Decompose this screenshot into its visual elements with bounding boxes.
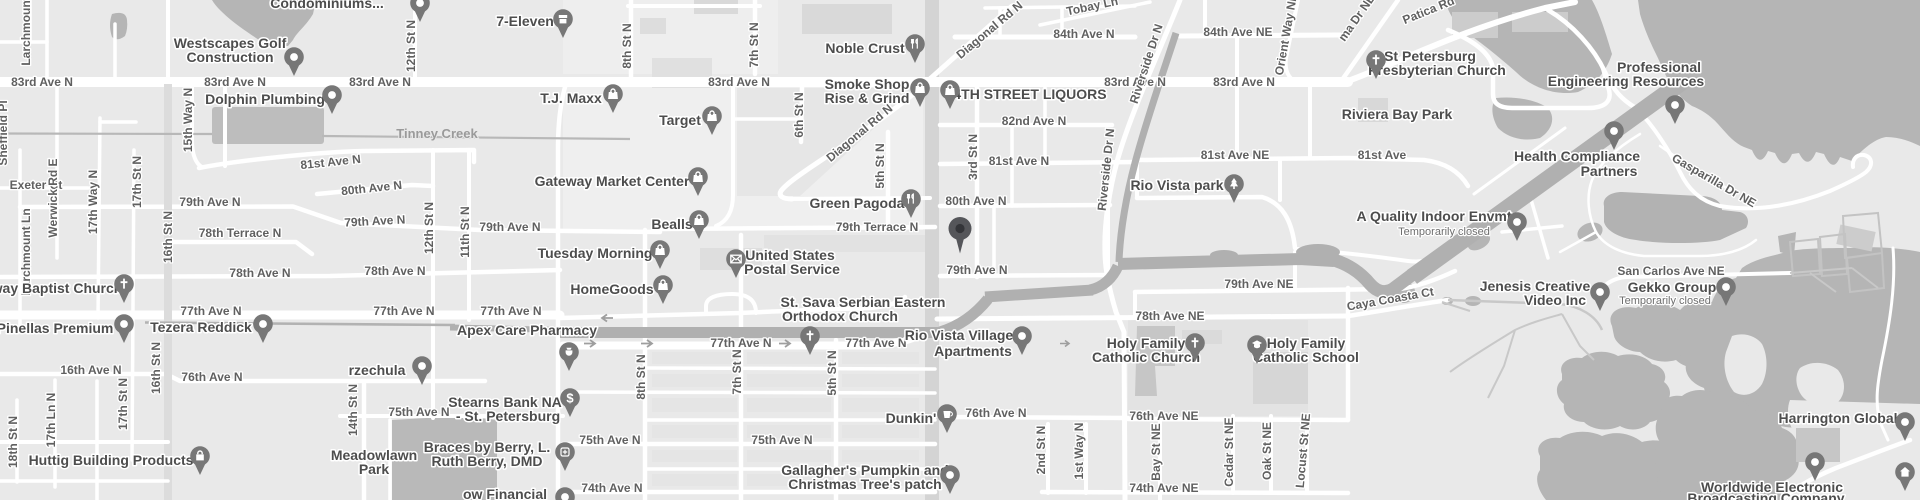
svg-text:81st Ave NE: 81st Ave NE	[1201, 148, 1269, 162]
svg-text:Dunkin': Dunkin'	[886, 410, 937, 426]
svg-text:7th St N: 7th St N	[730, 349, 744, 394]
svg-text:Temporarily closed: Temporarily closed	[1398, 226, 1490, 238]
svg-text:11th St N: 11th St N	[458, 206, 472, 257]
svg-text:83rd Ave N: 83rd Ave N	[1213, 75, 1275, 89]
svg-text:12th St N: 12th St N	[422, 202, 436, 254]
svg-text:1st Way N: 1st Way N	[1072, 423, 1086, 480]
svg-text:8th St N: 8th St N	[620, 23, 634, 68]
svg-text:82nd Ave N: 82nd Ave N	[1002, 114, 1066, 128]
svg-text:Werwick Rd E: Werwick Rd E	[46, 158, 60, 237]
svg-text:84th Ave N: 84th Ave N	[1053, 27, 1114, 41]
svg-text:75th Ave N: 75th Ave N	[751, 433, 812, 447]
svg-text:Engineering Resources: Engineering Resources	[1548, 73, 1705, 89]
svg-text:Dolphin Plumbing: Dolphin Plumbing	[205, 91, 325, 107]
svg-text:T.J. Maxx: T.J. Maxx	[540, 90, 602, 106]
svg-text:79th Terrace N: 79th Terrace N	[836, 220, 918, 234]
svg-text:14th St N: 14th St N	[346, 384, 360, 436]
svg-text:Apex Care Pharmacy: Apex Care Pharmacy	[457, 322, 597, 338]
svg-text:Orthodox Church: Orthodox Church	[782, 308, 898, 324]
svg-text:Broadcasting Company: Broadcasting Company	[1687, 490, 1844, 500]
svg-text:Huttig Building Products: Huttig Building Products	[29, 452, 194, 468]
svg-text:Presbyterian Church: Presbyterian Church	[1368, 62, 1506, 78]
svg-text:Condominiums...: Condominiums...	[270, 0, 384, 11]
svg-text:Catholic School: Catholic School	[1253, 349, 1359, 365]
svg-text:Green Pagoda: Green Pagoda	[810, 195, 905, 211]
svg-text:Postal Service: Postal Service	[744, 261, 840, 277]
svg-text:76th Ave NE: 76th Ave NE	[1129, 409, 1198, 423]
svg-text:Partners: Partners	[1581, 163, 1638, 179]
svg-text:Rise & Grind: Rise & Grind	[825, 90, 910, 106]
svg-text:- St. Petersburg: - St. Petersburg	[456, 408, 560, 424]
svg-text:6th St N: 6th St N	[792, 92, 806, 137]
svg-text:Oak St NE: Oak St NE	[1260, 422, 1274, 480]
svg-text:Park: Park	[359, 461, 390, 477]
svg-text:78th Terrace N: 78th Terrace N	[199, 226, 281, 240]
svg-text:Tuesday Morning: Tuesday Morning	[538, 245, 653, 261]
svg-text:Cedar St NE: Cedar St NE	[1222, 417, 1236, 486]
svg-text:rzechula: rzechula	[349, 362, 406, 378]
svg-text:81st Ave N: 81st Ave N	[989, 154, 1049, 168]
svg-text:Tinney Creek: Tinney Creek	[396, 126, 478, 141]
svg-text:79th Ave N: 79th Ave N	[179, 195, 240, 209]
svg-text:12th St N: 12th St N	[404, 20, 418, 72]
svg-text:way Baptist Church: way Baptist Church	[0, 280, 122, 296]
svg-text:83rd Ave N: 83rd Ave N	[349, 75, 411, 89]
svg-text:77th Ave N: 77th Ave N	[180, 304, 241, 318]
svg-text:79th Ave N: 79th Ave N	[946, 263, 1007, 277]
svg-text:79th Ave N: 79th Ave N	[479, 220, 540, 234]
svg-text:81st Ave: 81st Ave	[1358, 148, 1407, 162]
svg-text:74th Ave NE: 74th Ave NE	[1129, 481, 1198, 495]
svg-text:17th St N: 17th St N	[116, 378, 130, 430]
svg-text:Gekko Group: Gekko Group	[1628, 279, 1717, 295]
svg-text:83rd Ave N: 83rd Ave N	[11, 75, 73, 89]
svg-text:HomeGoods: HomeGoods	[570, 281, 653, 297]
svg-text:76th Ave N: 76th Ave N	[965, 406, 1026, 420]
svg-text:74th Ave N: 74th Ave N	[581, 481, 642, 495]
svg-text:Pinellas Premium: Pinellas Premium	[0, 320, 113, 336]
svg-text:Temporarily closed: Temporarily closed	[1619, 295, 1711, 307]
svg-text:16th St N: 16th St N	[149, 342, 163, 394]
svg-text:83rd Ave N: 83rd Ave N	[204, 75, 266, 89]
svg-text:Target: Target	[659, 112, 701, 128]
svg-text:75th Ave N: 75th Ave N	[579, 433, 640, 447]
svg-text:15th Way N: 15th Way N	[181, 88, 195, 152]
svg-text:77th Ave N: 77th Ave N	[845, 336, 906, 350]
svg-text:18th St N: 18th St N	[6, 416, 20, 468]
svg-text:San Carlos Ave NE: San Carlos Ave NE	[1617, 264, 1724, 278]
svg-text:Ruth Berry, DMD: Ruth Berry, DMD	[432, 453, 543, 469]
svg-text:78th Ave N: 78th Ave N	[229, 266, 290, 280]
svg-text:78th Ave N: 78th Ave N	[364, 264, 425, 278]
svg-text:Noble Crust: Noble Crust	[825, 40, 905, 56]
svg-text:77th Ave N: 77th Ave N	[480, 304, 541, 318]
svg-text:83rd Ave N: 83rd Ave N	[708, 75, 770, 89]
svg-text:Larchmount Ln: Larchmount Ln	[19, 0, 33, 66]
svg-text:Riviera Bay Park: Riviera Bay Park	[1342, 106, 1453, 122]
svg-text:Christmas Tree's patch: Christmas Tree's patch	[788, 476, 942, 492]
svg-text:Apartments: Apartments	[934, 343, 1012, 359]
svg-text:16th Ave N: 16th Ave N	[60, 363, 121, 377]
svg-text:17th Ln N: 17th Ln N	[44, 393, 58, 448]
svg-text:ow Financial: ow Financial	[463, 486, 547, 500]
svg-text:7th St N: 7th St N	[747, 22, 761, 67]
svg-text:80th Ave N: 80th Ave N	[945, 194, 1006, 208]
svg-text:2nd St N: 2nd St N	[1034, 426, 1048, 475]
svg-text:Tezera Reddick: Tezera Reddick	[150, 319, 252, 335]
svg-text:Gateway Market Center: Gateway Market Center	[535, 173, 690, 189]
svg-text:Rio Vista Village: Rio Vista Village	[905, 327, 1014, 343]
svg-text:Sheffield Pl: Sheffield Pl	[0, 100, 10, 165]
svg-text:Construction: Construction	[186, 49, 273, 65]
svg-text:Health Compliance: Health Compliance	[1514, 148, 1640, 164]
svg-text:7-Eleven: 7-Eleven	[496, 13, 554, 29]
svg-text:16th St N: 16th St N	[161, 211, 175, 263]
svg-text:5th St N: 5th St N	[825, 350, 839, 395]
svg-text:Bay St NE: Bay St NE	[1149, 423, 1163, 480]
svg-text:Harrington Global: Harrington Global	[1779, 410, 1898, 426]
svg-text:Bealls: Bealls	[651, 216, 692, 232]
svg-text:A Quality Indoor Envmt: A Quality Indoor Envmt	[1356, 208, 1511, 224]
svg-text:Catholic Church: Catholic Church	[1092, 349, 1200, 365]
svg-text:3rd St N: 3rd St N	[966, 134, 980, 180]
svg-text:8th St N: 8th St N	[634, 354, 648, 399]
svg-text:17th St N: 17th St N	[130, 156, 144, 208]
svg-text:77th Ave N: 77th Ave N	[710, 336, 771, 350]
svg-text:5th St N: 5th St N	[873, 143, 887, 188]
svg-text:Video Inc: Video Inc	[1524, 292, 1586, 308]
svg-text:75th Ave N: 75th Ave N	[388, 405, 449, 419]
svg-text:77th Ave N: 77th Ave N	[373, 304, 434, 318]
svg-text:17th Way N: 17th Way N	[86, 170, 100, 234]
svg-text:76th Ave N: 76th Ave N	[181, 370, 242, 384]
svg-text:Rio Vista park: Rio Vista park	[1130, 177, 1223, 193]
svg-text:84th Ave NE: 84th Ave NE	[1203, 25, 1272, 39]
svg-text:79th Ave NE: 79th Ave NE	[1224, 277, 1293, 291]
svg-text:78th Ave NE: 78th Ave NE	[1135, 309, 1204, 323]
svg-text:4TH STREET LIQUORS: 4TH STREET LIQUORS	[953, 86, 1106, 102]
